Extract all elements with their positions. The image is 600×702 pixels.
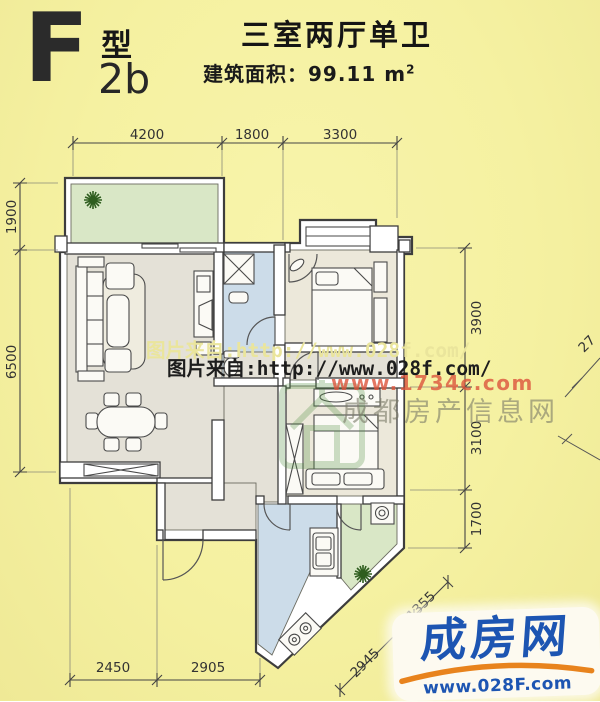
entry-door <box>163 540 203 580</box>
sofa <box>76 257 104 381</box>
built-area: 建筑面积：99.11 m2 <box>203 58 415 87</box>
adjacent-unit-lines <box>558 358 600 460</box>
washing-machine <box>371 503 394 524</box>
armchair-top <box>106 263 134 289</box>
unit-type-letter: F <box>24 2 89 97</box>
dim-top-3: 3300 <box>323 127 357 143</box>
dim-top-2: 1800 <box>235 127 269 143</box>
floorplan-page: 4200 1800 3300 1900 6500 3900 3100 1700 … <box>0 0 600 701</box>
site-logo: 成房网 www.028F.com <box>392 606 600 701</box>
nightstand-1 <box>374 262 387 292</box>
watermark-site-name: 成都房产信息网 <box>342 390 559 429</box>
kitchen-sink-counter <box>310 528 338 576</box>
armchair-bottom <box>105 349 131 372</box>
dim-bottom-1: 2450 <box>96 660 130 676</box>
built-area-label: 建筑面积：99.11 m <box>203 62 406 86</box>
page-title: 三室两厅单卫 <box>241 12 433 54</box>
dim-adjacent-fragment: 27 <box>575 332 598 355</box>
unit-type-code: 2b <box>98 55 150 103</box>
dim-right-1: 3900 <box>469 301 485 335</box>
dim-bottom-2: 2905 <box>191 660 225 676</box>
dim-left-1: 1900 <box>4 200 20 234</box>
dim-right-3: 1700 <box>469 502 485 536</box>
entry-floor <box>165 483 256 530</box>
shower <box>224 254 254 284</box>
bathroom-sink <box>229 292 248 303</box>
dim-diag-1: 2945 <box>347 645 383 681</box>
dining-window <box>84 464 158 476</box>
north-bedroom-bay-window <box>306 227 370 246</box>
dim-left-2: 6500 <box>4 345 20 379</box>
built-area-exponent: 2 <box>406 62 415 76</box>
dim-top-1: 4200 <box>130 127 164 143</box>
